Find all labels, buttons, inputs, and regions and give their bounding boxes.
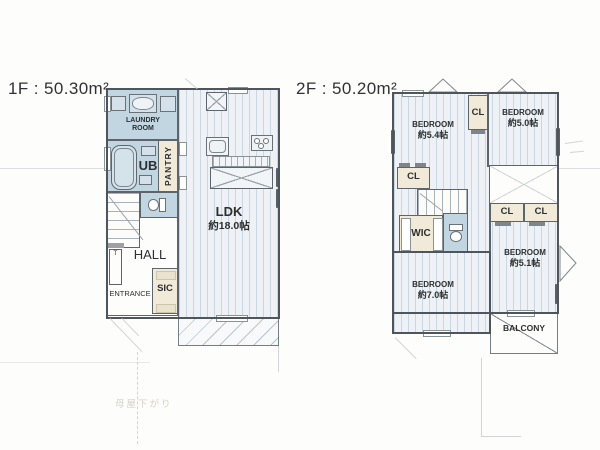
closet-label: CL <box>490 206 524 217</box>
ldk-size-label: 約18.0帖 <box>197 220 261 233</box>
pencil-guide-line <box>481 358 482 437</box>
pencil-guide-line <box>278 346 279 372</box>
kitchen-sink-icon <box>206 137 229 156</box>
pencil-mark <box>565 140 583 143</box>
ub-stool-icon <box>139 175 152 185</box>
pantry-door-mark <box>179 142 187 156</box>
window-mark <box>216 315 248 322</box>
scan-line <box>0 362 150 363</box>
window-mark <box>555 284 559 304</box>
floor2-title: 2F : 50.20m² <box>296 79 397 99</box>
laundry-label: LAUNDRYROOM <box>111 117 175 134</box>
refrigerator-mark <box>206 92 227 111</box>
wall-segment <box>107 243 124 248</box>
floorplan-canvas: 1F : 50.30m² 2F : 50.20m² LAUNDRYROOM UB… <box>0 0 600 450</box>
cabinet-label: T <box>109 251 122 258</box>
toilet-icon <box>150 198 166 212</box>
pantry-label: PANTRY <box>163 146 173 186</box>
floor1-title: 1F : 50.30m² <box>8 79 109 99</box>
kitchen-island <box>210 167 273 189</box>
roof-note: 母屋下がり <box>115 396 173 410</box>
bedroom-tl-label: BEDROOM 約5.4帖 <box>398 120 468 140</box>
door-mark <box>529 222 545 226</box>
ub-sink-icon <box>141 146 156 156</box>
pantry-door-mark <box>179 176 187 190</box>
gable-vent-icon <box>497 78 527 93</box>
wic-label: WIC <box>403 228 439 240</box>
window-mark <box>423 330 451 337</box>
bedroom-br-label: BEDROOM 約5.1帖 <box>494 248 556 268</box>
window-mark <box>276 168 280 187</box>
door-mark <box>471 130 485 134</box>
window-mark <box>276 189 280 208</box>
window-mark <box>402 90 424 97</box>
balcony <box>490 313 558 354</box>
window-mark <box>391 130 395 154</box>
closet-label: CL <box>468 107 488 118</box>
laundry-sink-icon <box>111 96 126 111</box>
wood-deck <box>178 318 279 346</box>
sic-shelf <box>156 304 176 313</box>
entrance-label: ENTRANCE <box>107 289 153 298</box>
window-mark <box>104 96 111 112</box>
scan-line <box>0 168 106 169</box>
sic-label: SIC <box>152 283 178 294</box>
hall-2f <box>490 166 558 203</box>
pencil-mark <box>570 151 584 153</box>
kitchen-counter <box>212 156 270 167</box>
window-mark <box>228 87 248 94</box>
ldk-label: LDK <box>203 204 255 220</box>
door-mark <box>495 222 511 226</box>
pencil-guide-line <box>481 436 521 437</box>
bedroom-bl-label: BEDROOM 約7.0帖 <box>398 280 468 300</box>
bedroom-tr-label: BEDROOM 約5.0帖 <box>492 108 554 128</box>
balcony-label: BALCONY <box>492 323 556 333</box>
closet-label: CL <box>397 171 430 182</box>
window-mark <box>556 128 560 156</box>
laundry-unit-icon <box>160 96 176 112</box>
stove-icon <box>251 135 273 151</box>
scan-line <box>559 168 600 169</box>
washing-machine-icon <box>129 94 157 113</box>
closet-label: CL <box>524 206 558 217</box>
sic-shelf <box>156 271 176 280</box>
gable-vent-icon <box>428 78 458 93</box>
side-opening-icon <box>559 245 578 282</box>
toilet-icon <box>449 224 463 240</box>
pencil-guide-line <box>395 337 417 359</box>
window-mark <box>507 310 535 317</box>
roof-line <box>185 78 198 89</box>
hall-label: HALL <box>125 247 175 263</box>
